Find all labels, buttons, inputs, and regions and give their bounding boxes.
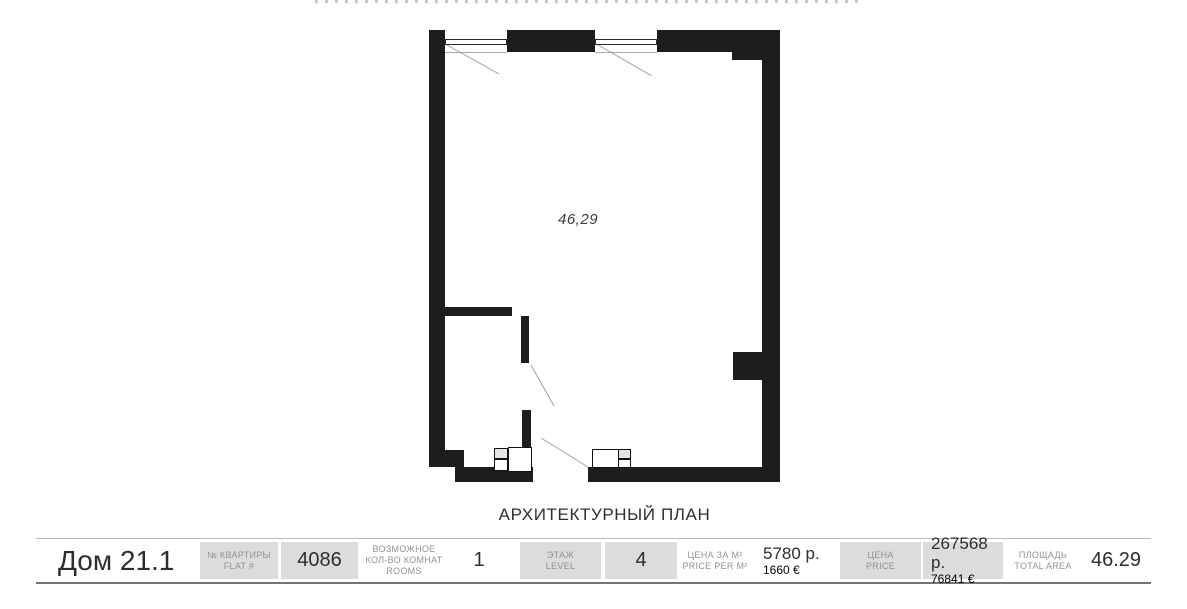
- total-area-label-en: TOTAL AREA: [1014, 561, 1071, 572]
- bathroom-fixture-small: [494, 459, 508, 471]
- total-area-label-ru: ПЛОЩАДЬ: [1019, 550, 1067, 561]
- price-eur: 76841 €: [931, 572, 974, 587]
- room-area-label: 46,29: [558, 211, 598, 228]
- level-label: ЭТАЖ LEVEL: [520, 542, 601, 579]
- flat-number-label-ru: № КВАРТИРЫ: [207, 550, 271, 561]
- price-rub: 267568 р.: [931, 534, 1003, 572]
- rooms-label-line3: ROOMS: [386, 566, 422, 577]
- price-values-box: 267568 р. 76841 €: [923, 542, 1003, 579]
- door-window-swing-lines: [429, 30, 780, 482]
- price-per-m2-label-ru: ЦЕНА ЗА М²: [687, 550, 742, 561]
- level-label-en: LEVEL: [546, 561, 576, 572]
- rooms-value: 1: [450, 542, 508, 579]
- level-label-ru: ЭТАЖ: [547, 550, 574, 561]
- price-label: ЦЕНА PRICE: [840, 542, 921, 579]
- flat-number-label: № КВАРТИРЫ FLAT #: [200, 542, 278, 579]
- level-value: 4: [635, 549, 646, 572]
- price-label-ru: ЦЕНА: [867, 550, 893, 561]
- price-per-m2-label-en: PRICE PER М²: [682, 561, 747, 572]
- total-area-value: 46.29: [1083, 542, 1149, 579]
- flat-number-label-en: FLAT #: [224, 561, 254, 572]
- plan-caption: АРХИТЕКТУРНЫЙ ПЛАН: [429, 505, 780, 525]
- flat-number-value: 4086: [297, 549, 342, 572]
- total-area-label: ПЛОЩАДЬ TOTAL AREA: [1007, 542, 1079, 579]
- level-value-box: 4: [605, 542, 677, 579]
- price-per-m2-eur: 1660 €: [763, 563, 800, 578]
- rooms-label-line2: КОЛ-ВО КОМНАТ: [366, 555, 443, 566]
- entry-fixture-small-bottom: [618, 459, 631, 468]
- info-bar: Дом 21.1 № КВАРТИРЫ FLAT # 4086 ВОЗМОЖНО…: [36, 538, 1151, 584]
- house-title: Дом 21.1: [58, 545, 174, 577]
- flat-plan-sheet: { "plan": { "area_label": "46,29", "capt…: [0, 0, 1187, 609]
- bathroom-fixture-sink: [494, 448, 508, 459]
- floor-plan: 46,29: [429, 30, 780, 482]
- rooms-label: ВОЗМОЖНОЕ КОЛ-ВО КОМНАТ ROOMS: [358, 542, 450, 579]
- flat-number-value-box: 4086: [281, 542, 358, 579]
- entry-fixture-small-top: [618, 449, 631, 459]
- clipped-header-text: [315, 0, 862, 3]
- rooms-label-line1: ВОЗМОЖНОЕ: [373, 544, 436, 555]
- price-per-m2-rub: 5780 р.: [763, 544, 820, 563]
- entry-fixture-cabinet: [592, 449, 619, 468]
- price-label-en: PRICE: [866, 561, 895, 572]
- price-per-m2-label: ЦЕНА ЗА М² PRICE PER М²: [679, 542, 751, 579]
- bathroom-fixture-washer: [508, 447, 532, 472]
- price-per-m2-values: 5780 р. 1660 €: [763, 542, 833, 579]
